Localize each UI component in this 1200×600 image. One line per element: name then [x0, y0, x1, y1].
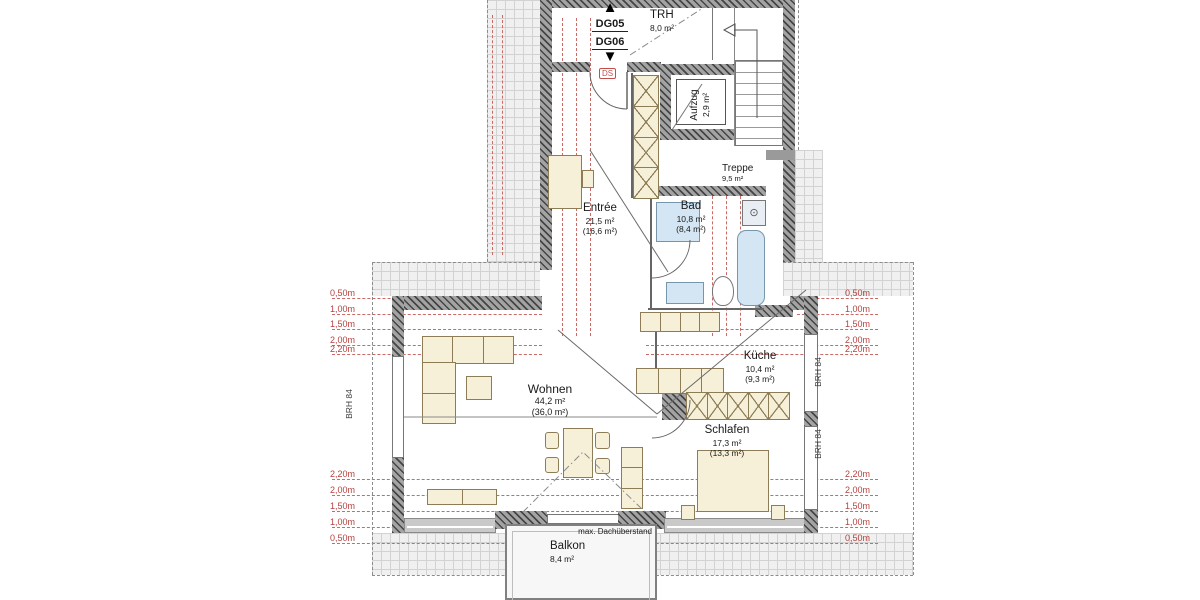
- room-name: Aufzug: [689, 89, 701, 120]
- closet-cell: [687, 393, 707, 419]
- room-label-bad: Bad 10,8 m² (8,4 m²): [662, 200, 720, 234]
- room-name: Bad: [662, 200, 720, 214]
- room-name: Entrée: [568, 202, 632, 216]
- stair-landing-block: [766, 150, 795, 160]
- room-name: Balkon: [550, 540, 585, 554]
- partition: [648, 308, 764, 310]
- room-area: 8,0 m²: [650, 23, 674, 33]
- floor-plan: ⊙ ▲ DG05 DG06 ▼ DS TRH 8,0 m² Aufzug 2,9…: [0, 0, 1200, 600]
- counter-cell: [641, 313, 660, 331]
- wall: [755, 305, 793, 317]
- room-label-wohnen: Wohnen 44,2 m² (36,0 m²): [514, 382, 586, 417]
- closet-cell: [748, 393, 769, 419]
- counter-cell: [658, 369, 680, 393]
- nightstand: [771, 505, 785, 520]
- wardrobe: [686, 392, 790, 420]
- room-label-entree: Entrée 21,5 m² (16,6 m²): [568, 202, 632, 236]
- brh-note-left: BRH 84: [344, 389, 354, 419]
- wall: [804, 518, 818, 533]
- toilet: [712, 276, 734, 306]
- arrow-up-icon: ▲: [598, 1, 622, 15]
- closet-cell: [768, 393, 789, 419]
- height-label: 2,20m: [845, 469, 870, 479]
- closet-cell: [634, 106, 658, 137]
- closet-cell: [634, 167, 658, 198]
- sideboard-cell: [462, 490, 497, 504]
- height-label: 1,50m: [845, 319, 870, 329]
- room-area: 10,8 m²: [662, 214, 720, 224]
- closet-cell: [634, 76, 658, 106]
- height-label: 0,50m: [330, 288, 355, 298]
- room-area-reduced: (36,0 m²): [514, 407, 586, 418]
- height-label: 2,00m: [845, 485, 870, 495]
- room-label-aufzug: Aufzug 2,9 m²: [689, 89, 711, 120]
- closet-cell: [707, 393, 728, 419]
- chair: [595, 432, 610, 449]
- height-label: 1,00m: [330, 517, 355, 527]
- height-label: 1,00m: [330, 304, 355, 314]
- sideboard-cell: [428, 490, 462, 504]
- room-label-treppe: Treppe 9,5 m²: [722, 163, 753, 184]
- boundary-line: [783, 262, 913, 263]
- stair-rail: [734, 8, 735, 146]
- height-label: 0,50m: [330, 533, 355, 543]
- height-label: 1,50m: [330, 319, 355, 329]
- stair-landing: [712, 8, 783, 60]
- height-label: 2,20m: [845, 344, 870, 354]
- wall: [545, 0, 795, 8]
- room-area-reduced: (16,6 m²): [568, 226, 632, 236]
- sofa-cushion: [452, 337, 482, 363]
- room-area: 8,4 m²: [550, 554, 585, 564]
- closet-cell: [727, 393, 748, 419]
- brh-note-right-2: BRH 84: [813, 429, 823, 459]
- height-line: [646, 345, 878, 346]
- bed: [697, 450, 769, 512]
- wall: [392, 296, 542, 310]
- boundary-line: [487, 0, 488, 262]
- height-line: [332, 495, 878, 496]
- arrow-down-icon: ▼: [598, 50, 622, 64]
- height-label: 1,00m: [845, 517, 870, 527]
- stair-treads: [735, 60, 783, 146]
- sofa-vertical: [422, 362, 456, 424]
- boundary-line: [913, 262, 914, 575]
- height-line-v: [492, 15, 493, 255]
- wall: [540, 0, 552, 270]
- height-line: [332, 314, 542, 315]
- room-area-reduced: (13,3 m²): [694, 448, 760, 458]
- height-line: [332, 511, 878, 512]
- height-label: 0,50m: [845, 533, 870, 543]
- height-label: 2,20m: [330, 344, 355, 354]
- cabinet-cell: [622, 467, 642, 487]
- room-area: 44,2 m²: [514, 396, 586, 407]
- height-label: 1,00m: [845, 304, 870, 314]
- wall: [552, 62, 590, 72]
- room-name: Schlafen: [694, 424, 760, 438]
- roof-grid-right-patch: [795, 150, 823, 262]
- coffee-table: [466, 376, 492, 400]
- room-label-kueche: Küche 10,4 m² (9,3 m²): [730, 350, 790, 384]
- door-tag-ds: DS: [599, 68, 616, 79]
- counter-cell: [637, 369, 658, 393]
- height-line-v: [502, 15, 503, 255]
- roof-grid-upper-left: [487, 0, 540, 262]
- room-area: 2,9 m²: [701, 89, 711, 120]
- bathtub: [737, 230, 765, 306]
- room-area: 21,5 m²: [568, 216, 632, 226]
- height-line-v: [726, 196, 727, 336]
- room-label-trh: TRH 8,0 m²: [650, 9, 674, 33]
- chair: [545, 457, 559, 473]
- nightstand: [681, 505, 695, 520]
- counter-cell: [701, 369, 723, 393]
- counter-cell: [680, 313, 700, 331]
- height-line: [332, 329, 542, 330]
- wall: [656, 186, 766, 196]
- chair: [595, 458, 610, 474]
- brh-note-right-1: BRH 84: [813, 357, 823, 387]
- tall-cabinet: [621, 447, 643, 509]
- room-name: Wohnen: [514, 382, 586, 396]
- balcony-door: [547, 514, 619, 524]
- room-area-reduced: (8,4 m²): [662, 224, 720, 234]
- room-name: TRH: [650, 9, 674, 23]
- dresser: [548, 155, 582, 209]
- cabinet-cell: [622, 448, 642, 467]
- room-area: 9,5 m²: [722, 175, 753, 184]
- room-area: 10,4 m²: [730, 364, 790, 374]
- hall-closet: [633, 75, 659, 199]
- sofa-cushion: [423, 363, 455, 393]
- height-label: 2,20m: [330, 469, 355, 479]
- room-area: 17,3 m²: [694, 438, 760, 448]
- dining-table: [563, 428, 593, 478]
- room-label-schlafen: Schlafen 17,3 m² (13,3 m²): [694, 424, 760, 458]
- sofa-horizontal: [422, 336, 514, 364]
- unit-label-dg05: DG05: [592, 18, 628, 32]
- height-label: 1,50m: [845, 501, 870, 511]
- wall: [783, 0, 795, 262]
- dresser-knob: [582, 170, 594, 188]
- window-band-line: [667, 526, 803, 528]
- cabinet-cell: [622, 488, 642, 508]
- boundary-line: [372, 262, 373, 575]
- room-label-balkon: Balkon 8,4 m²: [550, 540, 585, 564]
- boundary-line: [798, 0, 799, 150]
- closet-cell: [634, 137, 658, 168]
- window: [392, 356, 404, 458]
- room-area-reduced: (9,3 m²): [730, 374, 790, 384]
- washer: ⊙: [742, 200, 766, 226]
- overhang-note: max. Dachüberstand: [476, 527, 652, 536]
- kitchen-counter-bottom: [636, 368, 724, 394]
- roof-grid-top-left-band: [372, 262, 540, 296]
- kitchen-counter-top: [640, 312, 720, 332]
- height-line: [332, 479, 878, 480]
- room-name: Küche: [730, 350, 790, 364]
- chair: [545, 432, 559, 449]
- height-label: 2,00m: [330, 485, 355, 495]
- boundary-line: [372, 262, 542, 263]
- washbasin: [666, 282, 704, 304]
- wall: [627, 62, 661, 72]
- counter-cell: [680, 369, 702, 393]
- window-band: [664, 518, 806, 533]
- sofa-cushion: [483, 337, 513, 363]
- partition: [650, 193, 652, 308]
- counter-cell: [699, 313, 719, 331]
- sofa-cushion: [423, 337, 452, 363]
- height-label: 0,50m: [845, 288, 870, 298]
- sofa-cushion: [423, 393, 455, 424]
- wall: [662, 392, 686, 420]
- height-label: 1,50m: [330, 501, 355, 511]
- counter-cell: [660, 313, 680, 331]
- sideboard: [427, 489, 497, 505]
